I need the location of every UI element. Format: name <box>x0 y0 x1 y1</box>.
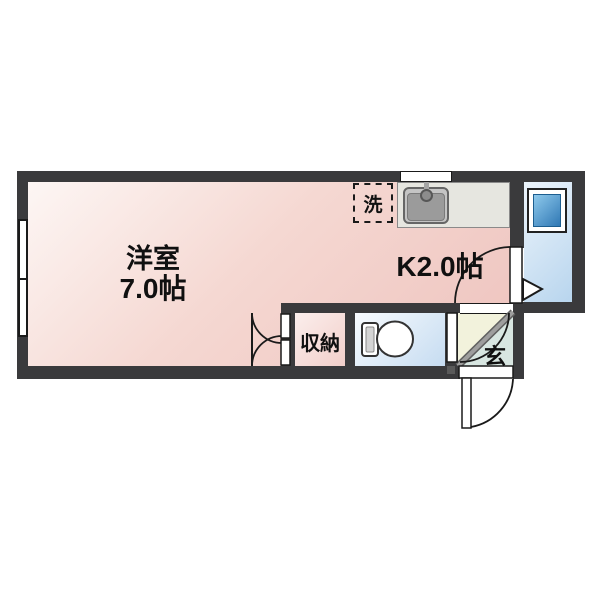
entrance-label: 玄 <box>479 339 511 371</box>
closet-label: 収納 <box>292 327 348 356</box>
western-room-name: 洋室 <box>58 244 248 274</box>
wall-toilet-entrance <box>445 313 458 366</box>
wall-bottom <box>17 366 460 379</box>
toilet-room-floor <box>355 313 445 366</box>
window-sash-divider <box>20 278 26 280</box>
wall-kitchen-bathroom <box>510 171 524 248</box>
bathroom-door-leaf <box>510 247 522 303</box>
bathtub-water <box>533 194 561 227</box>
corner-pillar <box>447 366 455 374</box>
wall-top <box>17 171 585 182</box>
floorplan-canvas: 洗 洋室 7.0帖 K2.0帖 収納 玄 <box>0 0 600 600</box>
bathtub-icon <box>527 188 567 233</box>
kitchen-label: K2.0帖 <box>370 245 510 285</box>
washing-machine-space: 洗 <box>353 183 393 223</box>
wall-bathroom-bottom <box>510 302 585 313</box>
wall-entrance-right <box>513 303 524 379</box>
front-door-arc <box>471 379 513 427</box>
sliding-window-icon <box>18 219 28 337</box>
washing-machine-label: 洗 <box>363 190 382 217</box>
western-room-label: 洋室 7.0帖 <box>58 244 248 304</box>
faucet-icon <box>420 189 433 202</box>
wall-mid-horizontal <box>281 303 460 313</box>
western-room-size: 7.0帖 <box>58 274 248 304</box>
kitchen-entrance-opening <box>460 303 513 314</box>
kitchen-window-icon <box>400 171 452 182</box>
wall-right-outer <box>572 171 585 313</box>
front-door-leaf <box>462 378 471 428</box>
